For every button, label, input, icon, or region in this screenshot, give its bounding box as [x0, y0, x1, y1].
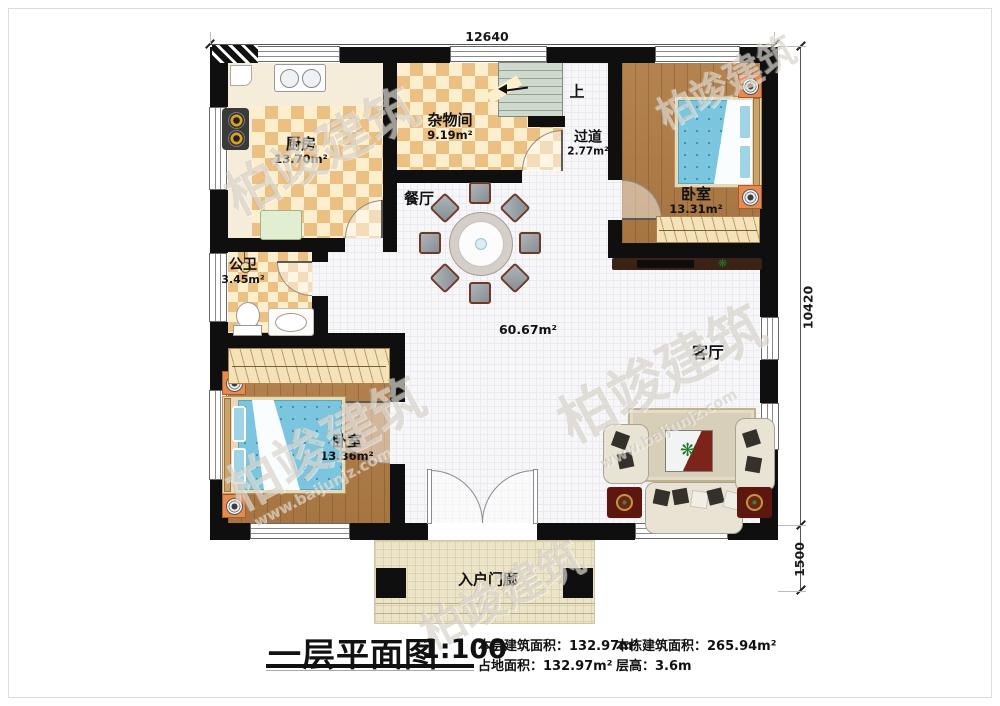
- stair-arrow-icon: [498, 84, 507, 94]
- wall: [312, 296, 328, 333]
- dimension-height: 10420: [800, 286, 815, 330]
- plant-pot-icon: [746, 494, 763, 511]
- porch-step-line: [375, 603, 594, 604]
- wardrobe-rail: [232, 366, 386, 367]
- stat-label: 占地面积：: [478, 659, 543, 674]
- room-area: 13.31m²: [669, 203, 722, 216]
- porch-column: [376, 568, 406, 598]
- stat-label: 本栋建筑面积：: [616, 639, 707, 654]
- room-name: 客厅: [692, 344, 724, 362]
- front-door-leaf: [427, 469, 432, 524]
- lamp-icon: [226, 498, 243, 515]
- refrigerator: [260, 210, 302, 240]
- wardrobe: [656, 216, 760, 243]
- stat-total-area: 本栋建筑面积：265.94m²: [616, 635, 776, 654]
- armchair-right: [735, 418, 775, 492]
- extension-line: [210, 32, 211, 44]
- side-table: [737, 487, 772, 518]
- stat-value: 3.6m: [655, 659, 692, 674]
- extension-line: [774, 32, 775, 44]
- extension-line: [778, 46, 806, 47]
- room-label-kitchen: 厨房 13.70m²: [274, 136, 327, 166]
- wall: [228, 238, 345, 252]
- open-area-label: 60.67m²: [499, 323, 557, 337]
- dining-chair: [419, 232, 441, 254]
- headboard: [753, 98, 760, 186]
- corner-sink: [230, 65, 252, 86]
- floor-plan-canvas: ❋ ❋ 厨房 13.70m² 杂物间: [0, 0, 1000, 706]
- room-label-porch: 入户门廊: [458, 572, 518, 589]
- pillow: [232, 448, 246, 484]
- plant-pot-icon: [616, 494, 633, 511]
- dining-chair: [519, 232, 541, 254]
- stat-floor-area: 本层建筑面积：132.97m²: [478, 635, 638, 654]
- stat-label: 本层建筑面积：: [478, 639, 569, 654]
- porch-step-line: [375, 613, 594, 614]
- wall: [340, 47, 450, 63]
- lamp-icon: [742, 189, 759, 206]
- up-text: 上: [569, 84, 584, 101]
- kitchen-sink: [274, 64, 326, 92]
- wall: [210, 190, 228, 253]
- dimension-width: 12640: [465, 29, 509, 44]
- door-leaf: [381, 200, 383, 238]
- wall: [760, 47, 778, 317]
- sofa-pillow: [706, 487, 724, 505]
- room-name: 公卫: [221, 258, 264, 274]
- front-door-leaf: [533, 469, 538, 524]
- stove: [222, 108, 249, 150]
- extension-line: [778, 591, 806, 592]
- wall: [547, 47, 655, 63]
- pillow: [738, 104, 752, 140]
- armchair-left: [603, 424, 649, 484]
- stat-value: 132.97m²: [543, 659, 612, 674]
- stat-floor-height: 层高：3.6m: [616, 655, 692, 674]
- nightstand: [222, 494, 246, 518]
- room-area: 13.70m²: [274, 153, 327, 166]
- nightstand: [738, 74, 762, 98]
- room-area: 2.77m²: [567, 146, 608, 158]
- wall: [528, 116, 565, 127]
- wall: [383, 63, 397, 238]
- room-name: 过道: [567, 130, 608, 146]
- bathroom-counter: [268, 308, 314, 336]
- room-name: 卧室: [320, 433, 373, 450]
- room-name: 餐厅: [404, 191, 434, 208]
- dimension-line-top: [210, 44, 775, 45]
- pillow: [738, 144, 752, 180]
- room-name: 入户门廊: [458, 572, 518, 589]
- wardrobe-rail: [659, 230, 757, 231]
- wall: [312, 252, 328, 262]
- side-table: [607, 487, 642, 518]
- room-label-storage: 杂物间 9.19m²: [427, 112, 472, 142]
- headboard: [224, 398, 231, 492]
- title-underline-thin: [266, 670, 474, 671]
- window: [257, 46, 340, 62]
- coffee-table: ❋: [665, 430, 713, 472]
- wall: [390, 464, 405, 523]
- toilet-tank: [233, 325, 262, 336]
- sofa-main: [645, 482, 743, 534]
- dining-chair: [469, 282, 491, 304]
- dimension-porch-depth: 1500: [792, 542, 807, 577]
- sofa-pillow: [745, 456, 762, 473]
- sofa-pillow: [617, 452, 635, 470]
- room-label-dining: 餐厅: [404, 191, 434, 208]
- room-area: 13.36m²: [320, 450, 373, 463]
- lamp-icon: [742, 78, 759, 95]
- plan-title: 一层平面图: [268, 628, 438, 676]
- room-name: 杂物间: [427, 112, 472, 129]
- pillow: [232, 406, 246, 442]
- plant-icon: ❋: [680, 442, 695, 460]
- room-label-living: 客厅: [692, 344, 724, 362]
- wall: [397, 170, 522, 183]
- room-label-bedroom-bottom: 卧室 13.36m²: [320, 433, 373, 463]
- wall: [390, 348, 405, 402]
- window: [655, 46, 740, 62]
- room-area: 9.19m²: [427, 129, 472, 142]
- stat-value: 265.94m²: [707, 639, 776, 654]
- sofa-pillow: [742, 429, 761, 448]
- wall: [537, 523, 635, 540]
- wall: [210, 523, 250, 540]
- stat-land-area: 占地面积：132.97m²: [478, 655, 612, 674]
- door-leaf: [561, 130, 563, 171]
- room-name: 厨房: [274, 136, 327, 153]
- dining-chair: [469, 182, 491, 204]
- porch-column: [563, 568, 593, 598]
- wardrobe: [228, 348, 390, 384]
- room-name: 卧室: [669, 186, 722, 203]
- wall: [608, 63, 622, 180]
- door-leaf: [277, 261, 312, 263]
- window: [761, 317, 779, 360]
- sofa-pillow: [653, 489, 671, 507]
- tv: [637, 260, 694, 268]
- wall: [608, 243, 760, 258]
- room-area: 60.67m²: [499, 323, 557, 337]
- room-label-bathroom: 公卫 3.45m²: [221, 258, 264, 286]
- sink-basin: [280, 69, 299, 88]
- window: [250, 523, 350, 539]
- nightstand: [738, 185, 762, 209]
- bathroom-sink: [275, 313, 307, 332]
- stairs-up-label: 上: [569, 84, 584, 101]
- burner: [228, 130, 245, 147]
- window: [450, 46, 547, 62]
- wall: [350, 523, 428, 540]
- extension-line: [778, 525, 806, 526]
- sofa-pillow: [611, 431, 630, 450]
- wall: [383, 238, 397, 252]
- room-label-bedroom-top: 卧室 13.31m²: [669, 186, 722, 216]
- flue-hatch: [212, 45, 258, 63]
- plant-icon: ❋: [718, 258, 727, 269]
- stat-label: 层高：: [616, 659, 655, 674]
- room-label-hallway: 过道 2.77m²: [567, 130, 608, 157]
- room-area: 3.45m²: [221, 274, 264, 286]
- burner: [228, 112, 245, 129]
- sofa-pillow: [672, 488, 689, 505]
- sink-basin: [302, 69, 321, 88]
- wall: [760, 360, 778, 403]
- table-center: [475, 238, 487, 250]
